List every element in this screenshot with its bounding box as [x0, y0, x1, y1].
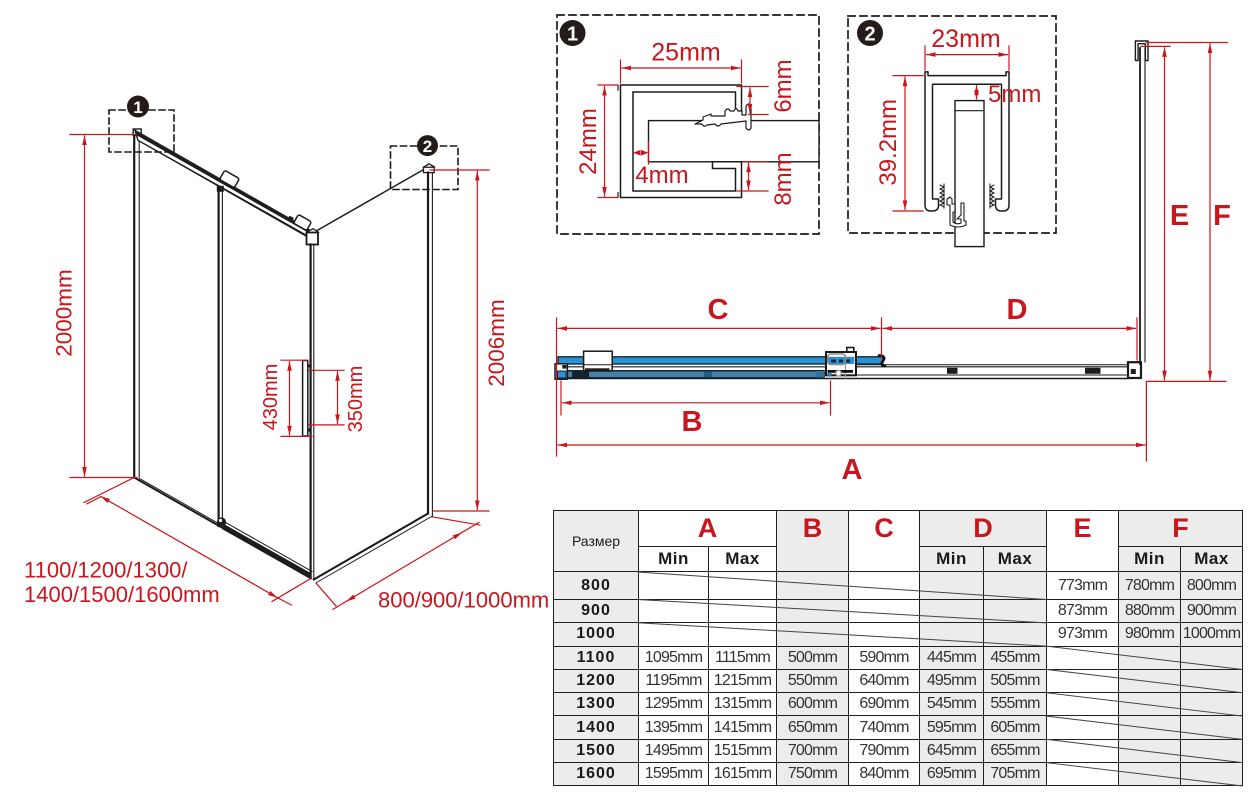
svg-text:1400/1500/1600mm: 1400/1500/1600mm [24, 582, 220, 607]
svg-text:2: 2 [423, 137, 432, 156]
svg-text:800/900/1000mm: 800/900/1000mm [378, 588, 549, 613]
svg-text:8mm: 8mm [770, 152, 797, 205]
svg-text:24mm: 24mm [575, 108, 602, 175]
svg-text:C: C [708, 294, 729, 326]
svg-text:2: 2 [864, 24, 875, 46]
svg-text:F: F [1213, 200, 1231, 232]
svg-text:5mm: 5mm [988, 81, 1041, 108]
svg-text:4mm: 4mm [635, 162, 688, 189]
svg-text:1100/1200/1300/: 1100/1200/1300/ [24, 558, 188, 583]
svg-text:2000mm: 2000mm [52, 269, 77, 357]
svg-text:430mm: 430mm [260, 364, 282, 431]
svg-text:B: B [682, 406, 703, 438]
svg-text:1: 1 [567, 24, 578, 46]
svg-text:23mm: 23mm [931, 25, 1000, 53]
svg-text:39.2mm: 39.2mm [875, 99, 902, 186]
svg-text:350mm: 350mm [345, 366, 367, 433]
svg-text:1: 1 [133, 98, 142, 117]
svg-text:A: A [842, 454, 863, 486]
svg-text:25mm: 25mm [651, 39, 720, 67]
svg-text:2006mm: 2006mm [484, 299, 509, 387]
svg-text:D: D [1007, 294, 1028, 326]
svg-text:E: E [1170, 200, 1189, 232]
svg-text:6mm: 6mm [770, 59, 797, 112]
